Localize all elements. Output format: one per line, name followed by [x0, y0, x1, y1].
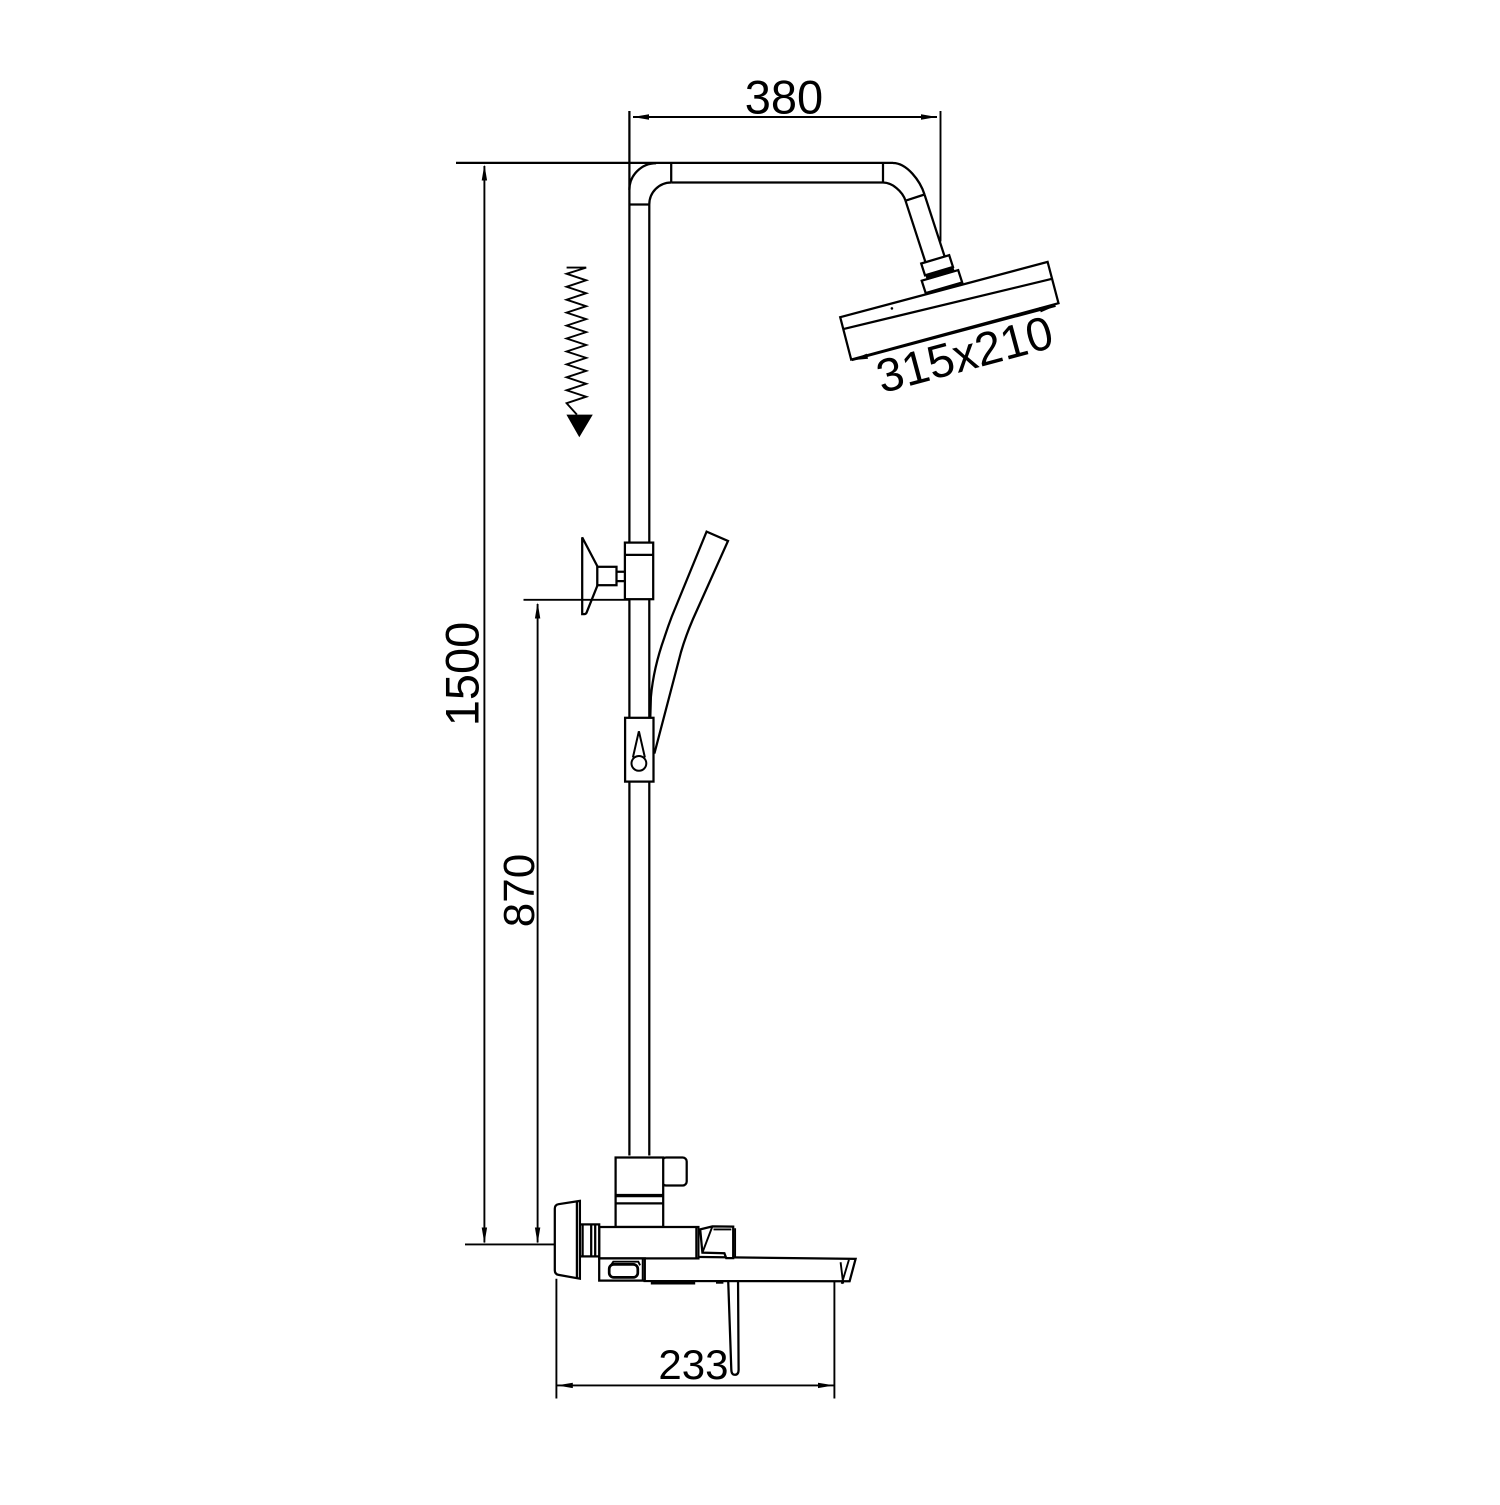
svg-text:870: 870 — [495, 854, 544, 927]
svg-text:1500: 1500 — [436, 622, 489, 727]
svg-text:380: 380 — [745, 71, 823, 124]
svg-text:233: 233 — [658, 1341, 728, 1388]
